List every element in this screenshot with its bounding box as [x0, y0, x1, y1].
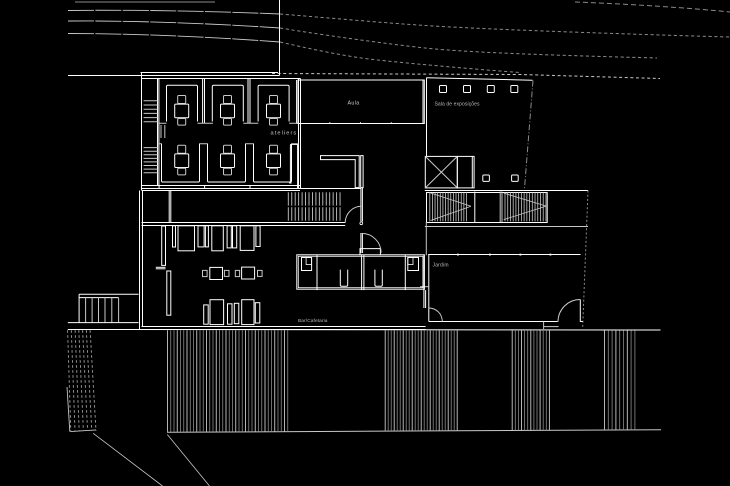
- svg-text:Jardim: Jardim: [433, 262, 449, 268]
- svg-text:Sala de exposições: Sala de exposições: [435, 101, 481, 107]
- svg-text:Aula: Aula: [348, 101, 360, 107]
- svg-text:ateliers: ateliers: [271, 130, 298, 136]
- svg-text:Bar/Cafetaria: Bar/Cafetaria: [298, 318, 328, 324]
